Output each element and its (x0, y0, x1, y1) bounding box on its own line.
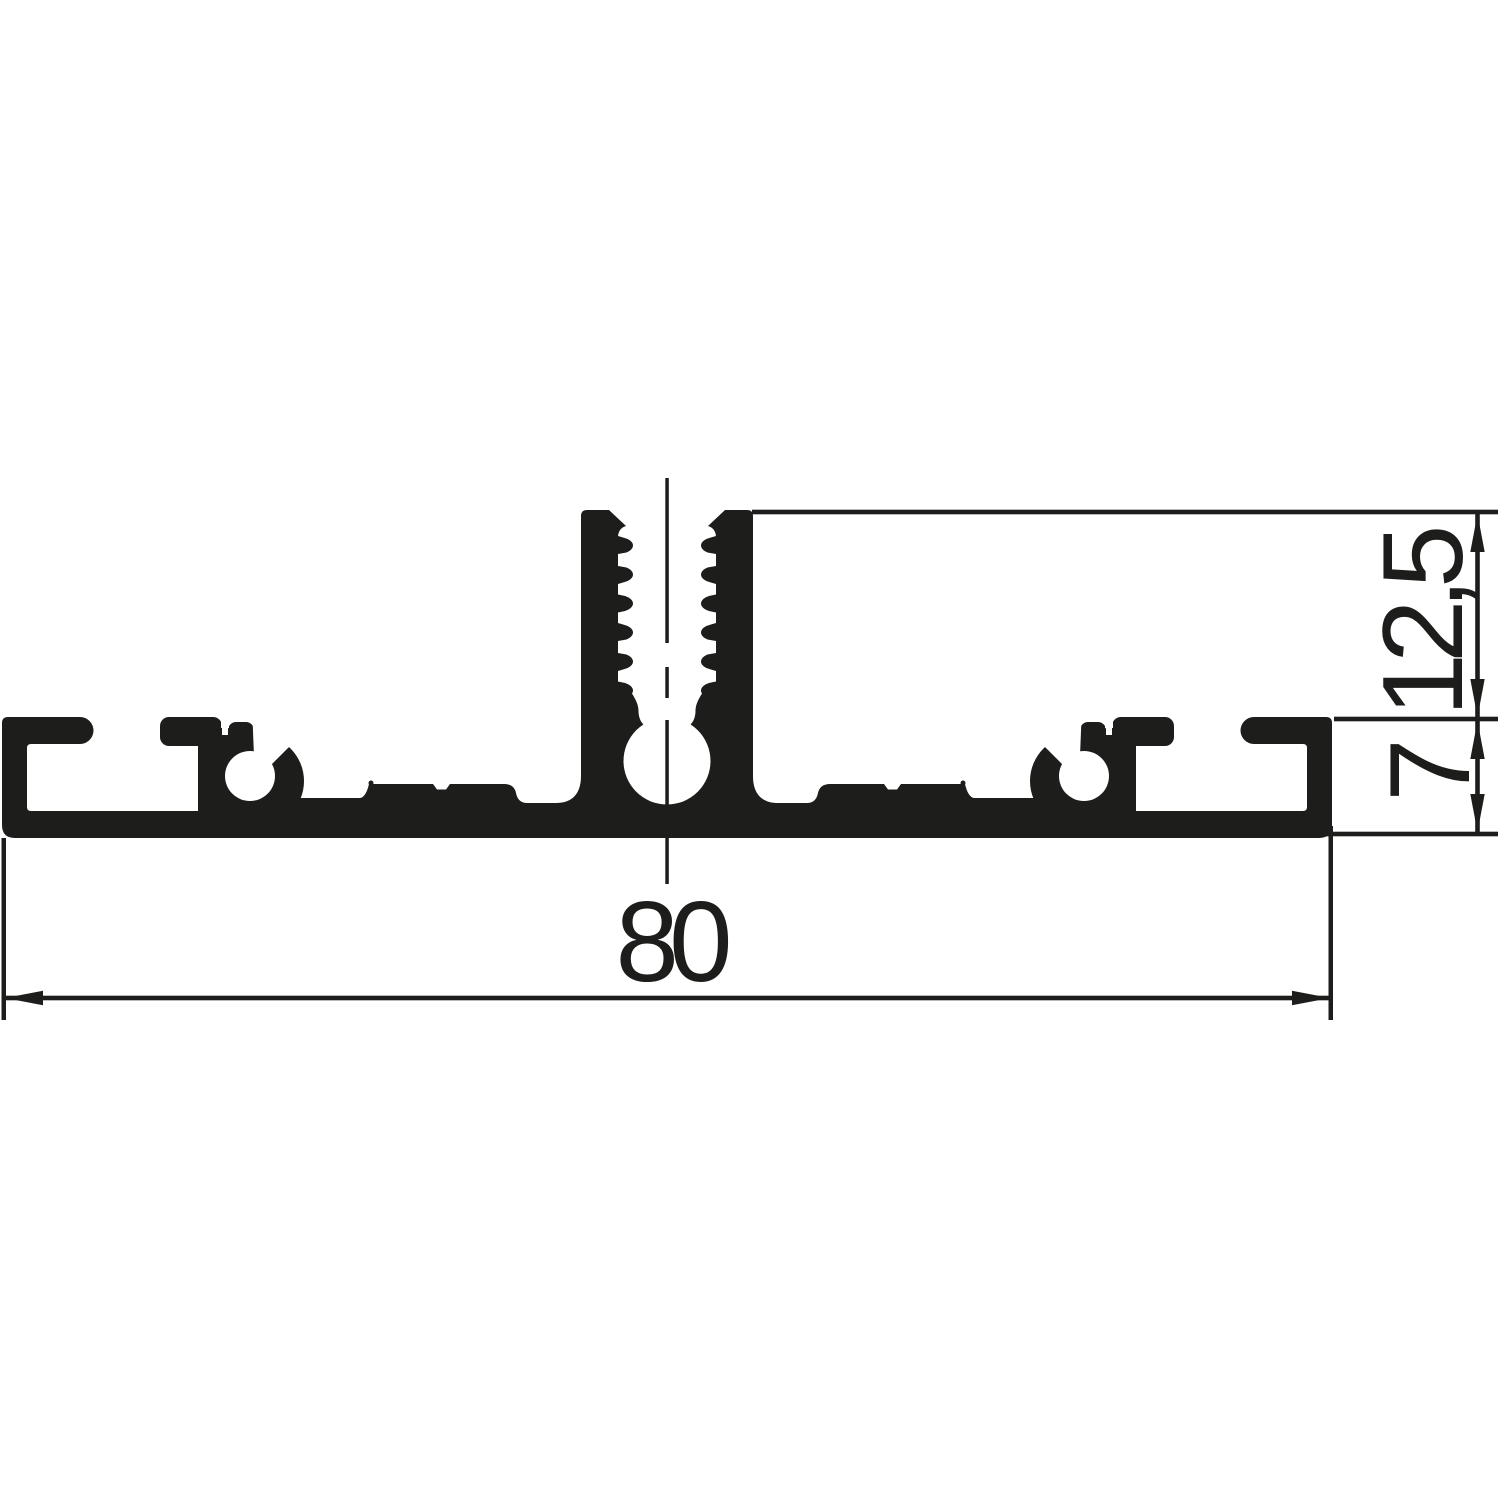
svg-text:12,5: 12,5 (1360, 529, 1487, 716)
svg-text:7: 7 (1367, 738, 1494, 801)
svg-text:80: 80 (616, 879, 733, 1006)
